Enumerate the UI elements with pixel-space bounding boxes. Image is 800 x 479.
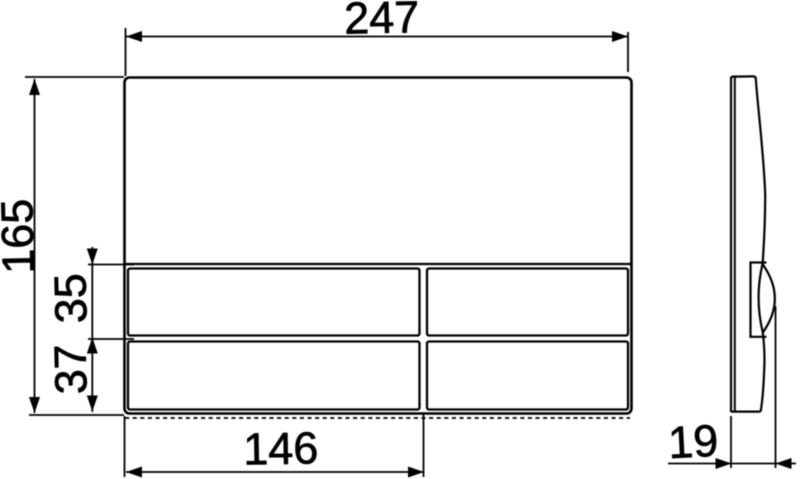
- svg-text:146: 146: [243, 422, 319, 474]
- svg-text:165: 165: [0, 198, 44, 274]
- svg-text:37: 37: [44, 344, 96, 395]
- svg-text:247: 247: [344, 0, 420, 44]
- svg-text:35: 35: [44, 273, 96, 324]
- svg-text:19: 19: [667, 415, 720, 469]
